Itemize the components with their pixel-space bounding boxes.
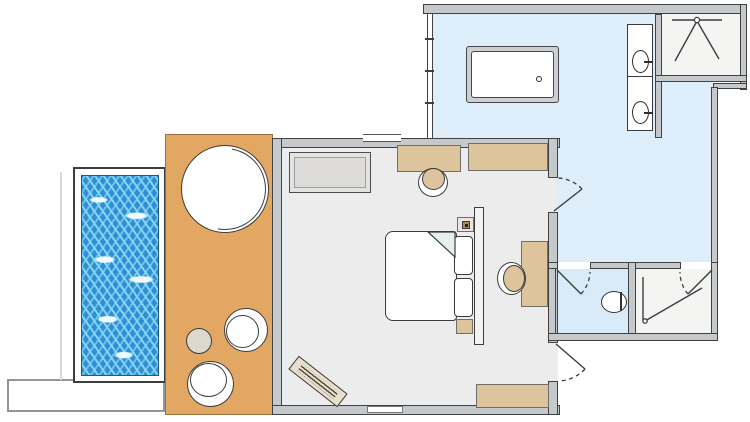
deck-chair xyxy=(224,308,268,352)
bathroom-window-glazing xyxy=(427,14,433,138)
plunge-pool-water xyxy=(81,175,159,376)
toilet-cistern xyxy=(620,292,622,311)
shower-room-floor xyxy=(662,14,740,78)
entry-walkway xyxy=(7,379,165,412)
nightstand xyxy=(456,319,473,334)
bathroom-jog-wall xyxy=(713,83,747,89)
pillow xyxy=(454,278,473,317)
pillow xyxy=(454,236,473,275)
faucet xyxy=(644,112,653,114)
wc-left-wall xyxy=(548,262,556,341)
round-daybed xyxy=(181,145,269,233)
sofa xyxy=(289,152,371,193)
window-mullion xyxy=(425,102,434,104)
wardrobe-console xyxy=(468,143,548,171)
pool-surround-edge xyxy=(60,172,62,380)
vanity-divider xyxy=(628,76,652,77)
shower-room-bottom-wall xyxy=(655,75,747,82)
chair-seat xyxy=(422,168,445,190)
wc-top-wall-corner xyxy=(548,262,558,269)
double-bed xyxy=(385,231,457,321)
bathroom-top-wall xyxy=(423,4,747,14)
desk-chair xyxy=(497,262,526,295)
deck-chair xyxy=(187,361,234,407)
faucet xyxy=(644,61,653,63)
bedroom-right-wall-c xyxy=(548,381,558,415)
deck-chair-seat xyxy=(190,363,227,397)
nightstand-with-lamp xyxy=(457,217,474,232)
bathtub-drain xyxy=(536,76,542,82)
headboard xyxy=(474,207,484,345)
sofa-cushion xyxy=(294,157,366,188)
entry-door-swing xyxy=(559,369,585,381)
small-rooms-bottom-wall xyxy=(548,333,718,341)
lamp-bulb xyxy=(465,224,468,227)
window-mullion xyxy=(425,38,434,40)
deck-side-table xyxy=(186,328,212,354)
bedroom-right-wall-a xyxy=(548,138,558,178)
bathroom-right-wall-lower xyxy=(711,87,718,268)
bedroom-window-segment xyxy=(363,134,401,142)
deck-chair-seat xyxy=(226,315,259,348)
floor-plan-canvas xyxy=(0,0,750,422)
window-mullion xyxy=(425,70,434,72)
bathtub xyxy=(466,46,559,103)
dressing-chair xyxy=(418,168,448,197)
bottom-wall-threshold xyxy=(367,406,403,413)
wc-shower-divider-wall xyxy=(628,262,636,341)
entry-door-leaf xyxy=(556,344,585,369)
toilet xyxy=(601,291,627,313)
bedroom-left-wall xyxy=(272,138,282,415)
outdoor-shower-floor xyxy=(636,269,711,333)
bathtub-basin xyxy=(471,51,554,98)
shower-right-wall xyxy=(711,262,718,341)
bench xyxy=(476,384,549,408)
chair-seat xyxy=(503,265,525,292)
